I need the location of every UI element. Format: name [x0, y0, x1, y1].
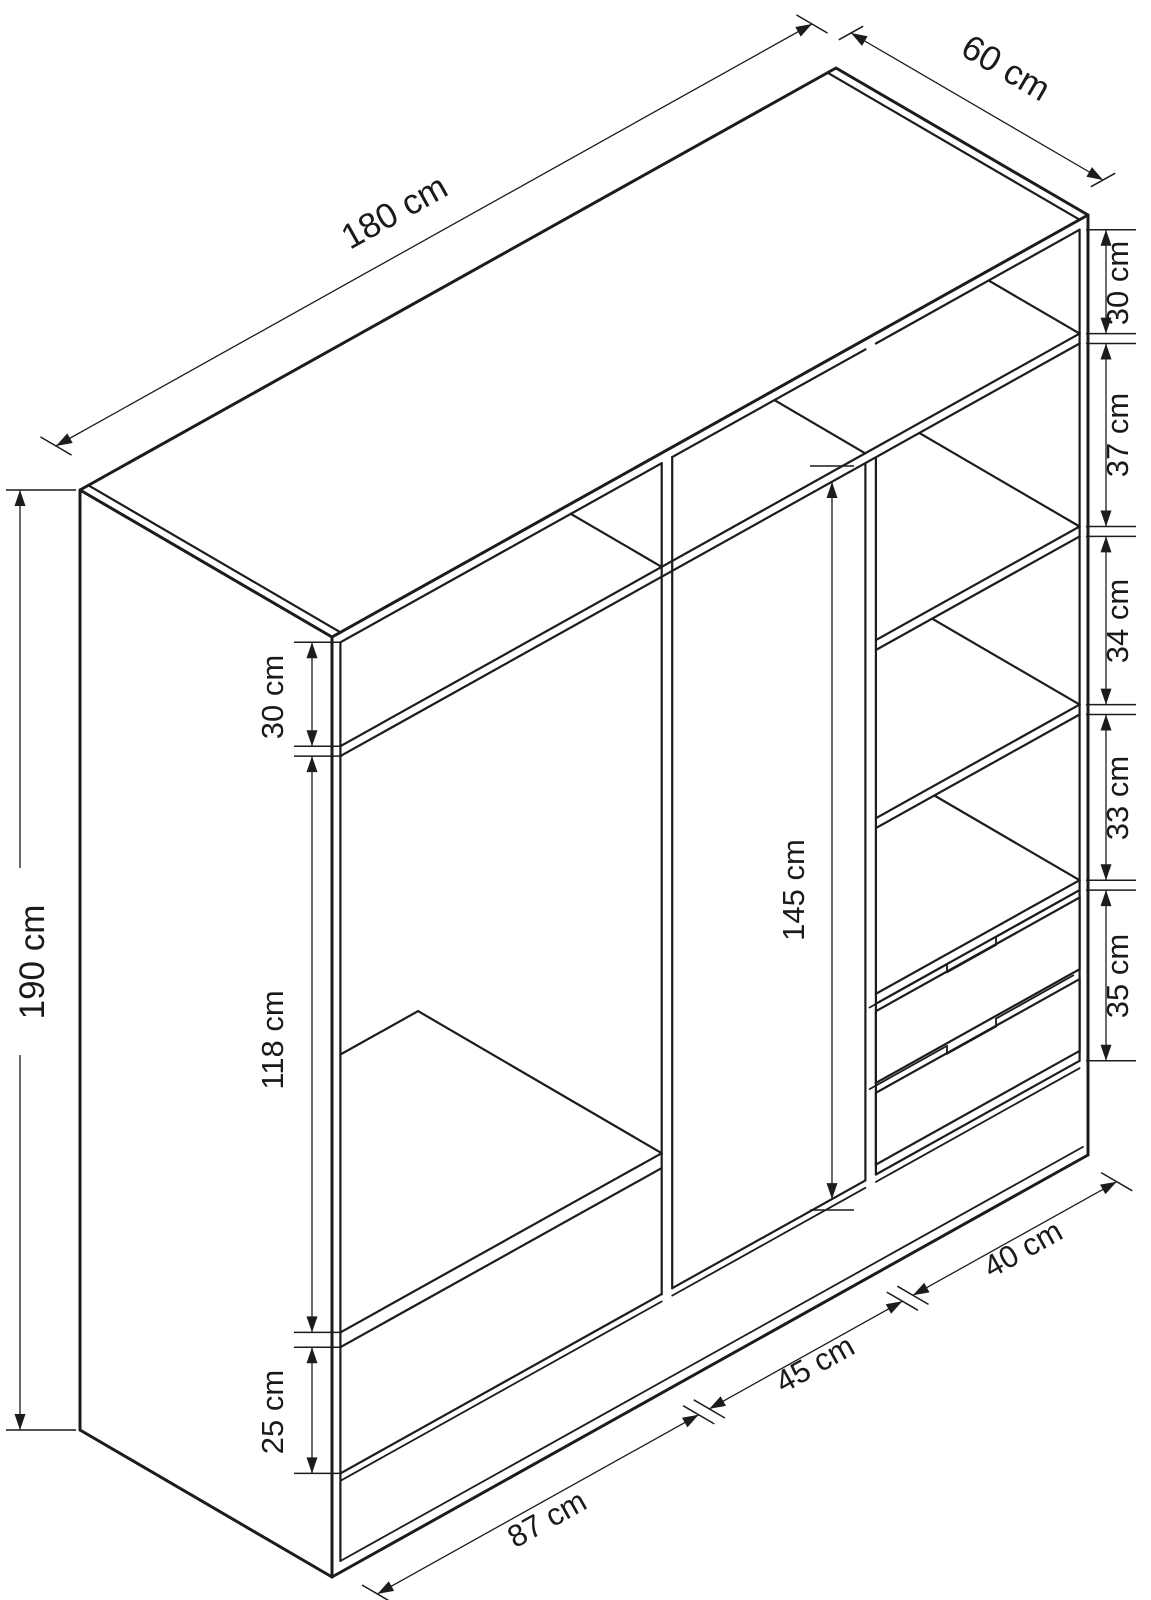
- dim-label-right-gap-3: 34 cm: [1100, 579, 1135, 663]
- dim-label-left-bottom-gap: 25 cm: [255, 1370, 290, 1454]
- dim-label-right-gap-2: 37 cm: [1100, 393, 1135, 477]
- dim-label-height: 190 cm: [13, 905, 52, 1020]
- dim-label-left-top-gap: 30 cm: [255, 655, 290, 739]
- dim-label-right-gap-5: 35 cm: [1100, 934, 1135, 1018]
- dim-label-right-gap-1: 30 cm: [1100, 241, 1135, 325]
- background: [0, 0, 1151, 1600]
- dim-label-left-hanging: 118 cm: [255, 990, 290, 1089]
- wardrobe-isometric-drawing: 180 cm 60 cm 190 cm 30 cm 118 cm 25 cm: [0, 0, 1151, 1600]
- wardrobe-dimension-diagram: 180 cm 60 cm 190 cm 30 cm 118 cm 25 cm: [0, 0, 1151, 1600]
- dim-label-right-gap-4: 33 cm: [1100, 756, 1135, 840]
- dim-label-middle-height: 145 cm: [776, 839, 811, 941]
